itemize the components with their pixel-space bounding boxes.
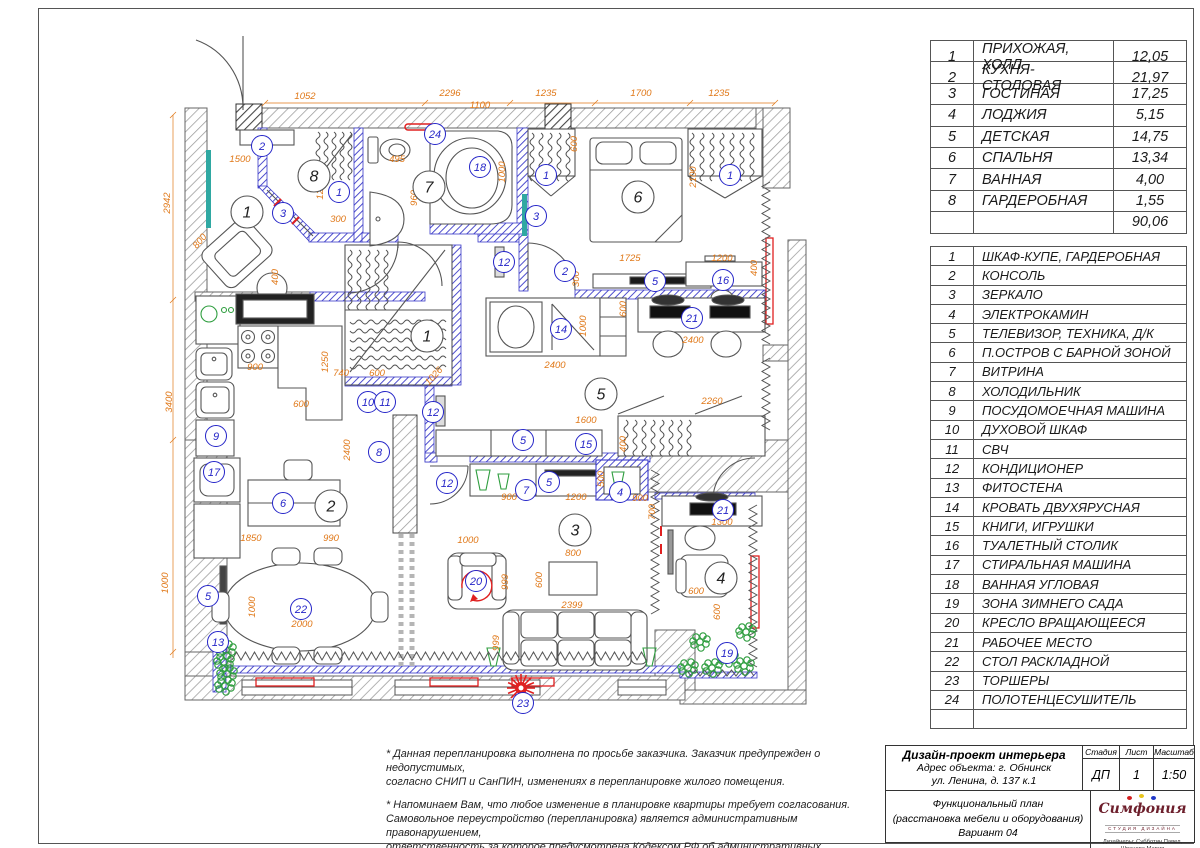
table-row: 20КРЕСЛО ВРАЩАЮЩЕЕСЯ: [931, 614, 1186, 633]
item-marker: 24: [425, 124, 446, 145]
svg-text:7: 7: [425, 180, 435, 197]
item-marker: 1: [329, 182, 350, 203]
stage-cell: Стадия ДП: [1083, 746, 1120, 790]
table-cell: ШКАФ-КУПЕ, ГАРДЕРОБНАЯ: [974, 247, 1186, 265]
dimension-label: 740: [333, 368, 350, 379]
table-cell: П.ОСТРОВ С БАРНОЙ ЗОНОЙ: [974, 343, 1186, 361]
table-cell: КРОВАТЬ ДВУХЯРУСНАЯ: [974, 498, 1186, 516]
item-marker: 17: [204, 462, 225, 483]
table-row: 6П.ОСТРОВ С БАРНОЙ ЗОНОЙ: [931, 343, 1186, 362]
table-cell: ЗЕРКАЛО: [974, 286, 1186, 304]
table-cell: ВАННАЯ УГЛОВАЯ: [974, 575, 1186, 593]
table-cell: 6: [931, 148, 974, 168]
logo-dots-icon: [1091, 794, 1194, 802]
table-cell: 8: [931, 382, 974, 400]
table-cell: 5: [931, 324, 974, 342]
dimension-label: 1235: [535, 88, 557, 99]
table-row: 7ВИТРИНА: [931, 363, 1186, 382]
table-cell: СТОЛ РАСКЛАДНОЙ: [974, 652, 1186, 670]
table-cell: СТИРАЛЬНАЯ МАШИНА: [974, 556, 1186, 574]
table-cell: 1,55: [1114, 191, 1186, 211]
table-row: 23ТОРШЕРЫ: [931, 672, 1186, 691]
svg-text:16: 16: [717, 275, 730, 287]
table-cell: ХОЛОДИЛЬНИК: [974, 382, 1186, 400]
dimension-label: 990: [323, 533, 340, 544]
dimension-label: 1100: [470, 100, 491, 111]
table-cell: [974, 710, 1186, 728]
tv-panel: [668, 530, 673, 574]
table-cell: 16: [931, 536, 974, 554]
table-cell: 23: [931, 672, 974, 690]
svg-text:12: 12: [441, 478, 453, 490]
item-marker: 23: [513, 693, 534, 714]
table-cell: 15: [931, 517, 974, 535]
dimension-label: 800: [565, 548, 582, 559]
chair: [272, 647, 300, 664]
dimension-label: 999: [500, 573, 511, 590]
drawing-sheet: 1052229611001235170012352942340010001500…: [0, 0, 1200, 848]
table-cell: 7: [931, 363, 974, 381]
dimension-label: 600: [534, 571, 545, 588]
svg-text:2: 2: [326, 499, 336, 516]
project-name: Дизайн-проект интерьера: [886, 748, 1082, 762]
dimension-label: 495: [389, 154, 406, 165]
table-row: [931, 710, 1186, 728]
table-cell: РАБОЧЕЕ МЕСТО: [974, 633, 1186, 651]
project-info: Дизайн-проект интерьера Адрес объекта: г…: [886, 746, 1083, 790]
dimension-label: 300: [330, 214, 347, 225]
table-cell: ДЕТСКАЯ: [974, 127, 1114, 147]
table-cell: ТОРШЕРЫ: [974, 672, 1186, 690]
svg-text:19: 19: [721, 648, 733, 660]
svg-text:15: 15: [580, 439, 593, 451]
table-cell: КОНСОЛЬ: [974, 266, 1186, 284]
dimension-label: 700: [647, 503, 658, 520]
table-cell: ТУАЛЕТНЫЙ СТОЛИК: [974, 536, 1186, 554]
dimension-label: 1200: [711, 253, 733, 264]
svg-text:13: 13: [212, 637, 225, 649]
table-row: 17СТИРАЛЬНАЯ МАШИНА: [931, 556, 1186, 575]
svg-text:5: 5: [597, 387, 606, 404]
table-cell: 3: [931, 286, 974, 304]
table-row: 18ВАННАЯ УГЛОВАЯ: [931, 575, 1186, 594]
table-cell: СПАЛЬНЯ: [974, 148, 1114, 168]
table-row: 3ГОСТИНАЯ17,25: [931, 84, 1186, 105]
dimension-label: 900: [247, 362, 264, 373]
room-marker: 6: [622, 181, 654, 213]
room-marker: 4: [705, 562, 737, 594]
room-marker: 8: [298, 160, 330, 192]
title-block: Дизайн-проект интерьера Адрес объекта: г…: [885, 745, 1195, 843]
dimension-label: 2942: [162, 192, 173, 215]
note-line: Самовольное переустройство (перепланиров…: [386, 812, 886, 840]
table-cell: 6: [931, 343, 974, 361]
table-cell: 4: [931, 305, 974, 323]
dimension-label: 600: [569, 135, 580, 152]
chair: [314, 548, 342, 565]
room-marker: 1: [411, 320, 443, 352]
drawing-title-2: (расстановка мебели и оборудования): [886, 812, 1090, 827]
dimension-label: 400: [618, 435, 629, 452]
svg-text:21: 21: [716, 505, 729, 517]
dimension-label: 2100: [688, 166, 699, 189]
svg-text:1: 1: [543, 170, 549, 182]
svg-text:11: 11: [379, 397, 390, 409]
table-row: 1ПРИХОЖАЯ, ХОЛЛ12,05: [931, 41, 1186, 62]
dimension-label: 900: [501, 492, 518, 503]
table-row: 3ЗЕРКАЛО: [931, 286, 1186, 305]
designers: Дизайнеры: Субботин Павел, Шванова Мария: [1091, 839, 1194, 848]
table-cell: ЭЛЕКТРОКАМИН: [974, 305, 1186, 323]
scale-value: 1:50: [1154, 759, 1194, 790]
chair: [371, 592, 388, 622]
furniture-legend-table: 1ШКАФ-КУПЕ, ГАРДЕРОБНАЯ2КОНСОЛЬ3ЗЕРКАЛО4…: [930, 246, 1187, 729]
svg-text:6: 6: [280, 498, 287, 510]
svg-text:17: 17: [208, 467, 221, 479]
table-cell: КНИГИ, ИГРУШКИ: [974, 517, 1186, 535]
svg-text:8: 8: [310, 169, 319, 186]
note-line: * Данная перепланировка выполнена по про…: [386, 747, 886, 775]
sheet-label: Лист: [1120, 746, 1153, 759]
dimension-label: 600: [293, 399, 310, 410]
table-row: 8ХОЛОДИЛЬНИК: [931, 382, 1186, 401]
item-marker: 6: [273, 493, 294, 514]
logo-name: Симфония: [1091, 802, 1194, 817]
desk-chair: [711, 331, 741, 357]
kitchen-cabinet: [196, 296, 240, 344]
item-marker: 5: [539, 472, 560, 493]
svg-text:1: 1: [243, 205, 252, 222]
logo-subtitle: СТУДИЯ ДИЗАЙНА: [1105, 825, 1180, 833]
table-cell: 12: [931, 459, 974, 477]
item-marker: 5: [513, 430, 534, 451]
svg-text:10: 10: [362, 397, 375, 409]
dimension-label: 1700: [630, 88, 652, 99]
table-cell: ЛОДЖИЯ: [974, 105, 1114, 125]
item-marker: 21: [713, 500, 734, 521]
dimension-label: 600: [369, 368, 386, 379]
svg-text:1: 1: [423, 329, 432, 346]
table-row: 16ТУАЛЕТНЫЙ СТОЛИК: [931, 536, 1186, 555]
table-row: 6СПАЛЬНЯ13,34: [931, 148, 1186, 169]
item-marker: 20: [466, 571, 487, 592]
dimension-label: 2399: [560, 600, 583, 611]
svg-text:23: 23: [516, 698, 530, 710]
table-cell: ЗОНА ЗИМНЕГО САДА: [974, 594, 1186, 612]
svg-text:22: 22: [294, 604, 307, 616]
svg-text:3: 3: [280, 208, 287, 220]
table-row: 13ФИТОСТЕНА: [931, 479, 1186, 498]
dimension-label: 1000: [160, 572, 171, 594]
item-marker: 7: [516, 480, 537, 501]
svg-text:1: 1: [727, 170, 733, 182]
table-cell: ГОСТИНАЯ: [974, 84, 1114, 104]
table-cell: КОНДИЦИОНЕР: [974, 459, 1186, 477]
note-line: согласно СНИП и СанПИН, изменениях в пер…: [386, 775, 886, 789]
table-row: 19ЗОНА ЗИМНЕГО САДА: [931, 594, 1186, 613]
svg-text:21: 21: [685, 313, 698, 325]
dimension-label: 600: [712, 603, 723, 620]
svg-text:6: 6: [634, 190, 643, 207]
room-marker: 3: [559, 514, 591, 546]
svg-text:5: 5: [652, 276, 659, 288]
dimension-label: 1000: [578, 315, 589, 337]
table-cell: 11: [931, 440, 974, 458]
room-marker: 2: [315, 490, 347, 522]
table-row: 22СТОЛ РАСКЛАДНОЙ: [931, 652, 1186, 671]
table-cell: КРЕСЛО ВРАЩАЮЩЕЕСЯ: [974, 614, 1186, 632]
dimension-label: 1250: [320, 351, 331, 373]
table-cell: ДУХОВОЙ ШКАФ: [974, 421, 1186, 439]
svg-text:12: 12: [427, 407, 439, 419]
chair: [272, 548, 300, 565]
table-cell: 2: [931, 266, 974, 284]
sink: [370, 192, 404, 246]
table-cell: [931, 212, 974, 232]
item-marker: 14: [551, 319, 572, 340]
stage-value: ДП: [1083, 759, 1119, 790]
scale-label: Масштаб: [1154, 746, 1194, 759]
table-cell: ГАРДЕРОБНАЯ: [974, 191, 1114, 211]
dimension-label: 1850: [240, 533, 262, 544]
svg-text:5: 5: [520, 435, 527, 447]
table-row: 14КРОВАТЬ ДВУХЯРУСНАЯ: [931, 498, 1186, 517]
table-row: 4ЭЛЕКТРОКАМИН: [931, 305, 1186, 324]
item-marker: 9: [206, 426, 227, 447]
table-cell: 8: [931, 191, 974, 211]
table-row: 10ДУХОВОЙ ШКАФ: [931, 421, 1186, 440]
dimension-label: 1235: [708, 88, 730, 99]
demolished-wall: [401, 534, 412, 666]
svg-text:14: 14: [555, 324, 567, 336]
table-cell: 4,00: [1114, 169, 1186, 189]
item-marker: 3: [526, 206, 547, 227]
dimension-label: 1000: [457, 535, 479, 546]
cabinet: [194, 504, 240, 558]
table-row: 4ЛОДЖИЯ5,15: [931, 105, 1186, 126]
svg-text:4: 4: [617, 487, 623, 499]
dimension-label: 2400: [342, 439, 353, 462]
table-row: 1ШКАФ-КУПЕ, ГАРДЕРОБНАЯ: [931, 247, 1186, 266]
table-row: 15КНИГИ, ИГРУШКИ: [931, 517, 1186, 536]
svg-text:3: 3: [533, 211, 540, 223]
bar-chair: [284, 460, 312, 480]
svg-text:5: 5: [205, 591, 212, 603]
table-cell: 22: [931, 652, 974, 670]
drawing-title-1: Функциональный план: [886, 797, 1090, 812]
sheet-value: 1: [1120, 759, 1153, 790]
dimension-label: 2260: [700, 396, 723, 407]
table-cell: 21: [931, 633, 974, 651]
table-cell: 10: [931, 421, 974, 439]
room-area-table: 1ПРИХОЖАЯ, ХОЛЛ12,052КУХНЯ-СТОЛОВАЯ21,97…: [930, 40, 1187, 234]
table-row: 8ГАРДЕРОБНАЯ1,55: [931, 191, 1186, 212]
room-marker: 7: [413, 171, 445, 203]
table-cell: ПОЛОТЕНЦЕСУШИТЕЛЬ: [974, 691, 1186, 709]
coffee-table: [549, 562, 597, 595]
table-cell: 18: [931, 575, 974, 593]
table-cell: 17: [931, 556, 974, 574]
item-marker: 12: [437, 473, 458, 494]
notes: * Данная перепланировка выполнена по про…: [386, 747, 886, 848]
item-marker: 19: [717, 643, 738, 664]
room-marker: 1: [231, 196, 263, 228]
table-cell: 14: [931, 498, 974, 516]
dimension-label: 1000: [497, 161, 508, 183]
project-address-2: ул. Ленина, д. 137 к.1: [886, 775, 1082, 788]
table-cell: 5: [931, 127, 974, 147]
dimension-label: 2000: [290, 619, 313, 630]
item-marker: 2: [252, 136, 273, 157]
svg-text:20: 20: [469, 576, 483, 588]
dimension-label: 2400: [543, 360, 566, 371]
item-marker: 15: [576, 434, 597, 455]
table-row: 12КОНДИЦИОНЕР: [931, 459, 1186, 478]
table-cell: 13,34: [1114, 148, 1186, 168]
item-marker: 22: [291, 599, 312, 620]
item-marker: 13: [208, 632, 229, 653]
table-cell: [974, 212, 1114, 232]
svg-text:24: 24: [428, 129, 441, 141]
plant-icon: [736, 623, 756, 641]
item-marker: 3: [273, 203, 294, 224]
table-row: 2КОНСОЛЬ: [931, 266, 1186, 285]
item-marker: 12: [494, 252, 515, 273]
dimension-label: 3400: [164, 391, 175, 413]
table-cell: ВАННАЯ: [974, 169, 1114, 189]
svg-text:2: 2: [258, 141, 265, 153]
table-cell: 90,06: [1114, 212, 1186, 232]
table-cell: ФИТОСТЕНА: [974, 479, 1186, 497]
table-row: 90,06: [931, 212, 1186, 232]
drawing-title-3: Вариант 04: [886, 826, 1090, 841]
dimension-label: 400: [749, 259, 760, 276]
item-marker: 1: [536, 165, 557, 186]
table-cell: [931, 710, 974, 728]
studio-logo: Симфония СТУДИЯ ДИЗАЙНА Дизайнеры: Суббо…: [1091, 791, 1194, 848]
kids-wardrobe: [618, 416, 765, 456]
dimension-label: 999: [491, 634, 502, 651]
table-row: 7ВАННАЯ4,00: [931, 169, 1186, 190]
table-cell: 14,75: [1114, 127, 1186, 147]
table-cell: 9: [931, 401, 974, 419]
table-cell: 1: [931, 247, 974, 265]
dimension-label: 1725: [619, 253, 641, 264]
table-cell: 13: [931, 479, 974, 497]
dimension-label: 1200: [565, 492, 587, 503]
item-marker: 1: [720, 165, 741, 186]
item-marker: 18: [470, 157, 491, 178]
mirror: [206, 150, 211, 228]
item-marker: 5: [198, 586, 219, 607]
dimension-label: 500: [596, 470, 607, 487]
drawing-title: Функциональный план (расстановка мебели …: [886, 791, 1091, 848]
dimension-label: 600: [618, 300, 629, 317]
item-marker: 12: [423, 402, 444, 423]
table-row: 24ПОЛОТЕНЦЕСУШИТЕЛЬ: [931, 691, 1186, 710]
table-row: 5ТЕЛЕВИЗОР, ТЕХНИКА, Д/К: [931, 324, 1186, 343]
svg-text:5: 5: [546, 477, 553, 489]
svg-text:3: 3: [571, 523, 580, 540]
svg-text:18: 18: [474, 162, 487, 174]
svg-text:1: 1: [336, 187, 342, 199]
sheet-cell: Лист 1: [1120, 746, 1154, 790]
svg-text:4: 4: [717, 571, 726, 588]
table-cell: 5,15: [1114, 105, 1186, 125]
item-marker: 2: [555, 261, 576, 282]
item-marker: 11: [375, 392, 396, 413]
table-cell: ВИТРИНА: [974, 363, 1186, 381]
dimension-label: 1052: [294, 91, 316, 102]
table-row: 11СВЧ: [931, 440, 1186, 459]
item-marker: 8: [369, 442, 390, 463]
table-cell: 4: [931, 105, 974, 125]
toilet-tank: [368, 137, 378, 163]
table-cell: 7: [931, 169, 974, 189]
table-row: 21РАБОЧЕЕ МЕСТО: [931, 633, 1186, 652]
dimension-label: 900: [632, 493, 649, 504]
table-cell: ТЕЛЕВИЗОР, ТЕХНИКА, Д/К: [974, 324, 1186, 342]
dimension-label: 400: [270, 268, 281, 285]
svg-text:7: 7: [523, 485, 530, 497]
dimension-label: 1500: [229, 154, 251, 165]
floor-plan: 1052229611001235170012352942340010001500…: [0, 0, 850, 760]
table-row: 9ПОСУДОМОЕЧНАЯ МАШИНА: [931, 401, 1186, 420]
dimension-label: 600: [688, 586, 705, 597]
table-cell: СВЧ: [974, 440, 1186, 458]
svg-text:9: 9: [213, 431, 219, 443]
item-marker: 16: [713, 270, 734, 291]
table-row: 2КУХНЯ-СТОЛОВАЯ21,97: [931, 62, 1186, 83]
chair: [685, 526, 715, 550]
svg-text:8: 8: [376, 447, 383, 459]
project-address-1: Адрес объекта: г. Обнинск: [886, 762, 1082, 775]
stage-label: Стадия: [1083, 746, 1119, 759]
table-row: 5ДЕТСКАЯ14,75: [931, 127, 1186, 148]
room-marker: 5: [585, 378, 617, 410]
item-marker: 21: [682, 308, 703, 329]
desk-chair: [653, 331, 683, 357]
note-line: * Напоминаем Вам, что любое изменение в …: [386, 798, 886, 812]
item-marker: 5: [645, 271, 666, 292]
dimension-label: 2296: [438, 88, 461, 99]
plant-icon: [690, 633, 710, 651]
dimension-label: 1600: [575, 415, 597, 426]
table-cell: 19: [931, 594, 974, 612]
scale-cell: Масштаб 1:50: [1154, 746, 1194, 790]
svg-text:12: 12: [498, 257, 510, 269]
item-marker: 4: [610, 482, 631, 503]
table-cell: 17,25: [1114, 84, 1186, 104]
table-cell: ПОСУДОМОЕЧНАЯ МАШИНА: [974, 401, 1186, 419]
dimension-label: 2400: [681, 335, 704, 346]
dimension-label: 1000: [247, 596, 258, 618]
svg-text:2: 2: [561, 266, 568, 278]
note-line: ответственность за которое предусмотрена…: [386, 840, 886, 848]
table-cell: 20: [931, 614, 974, 632]
table-cell: 24: [931, 691, 974, 709]
table-cell: 3: [931, 84, 974, 104]
